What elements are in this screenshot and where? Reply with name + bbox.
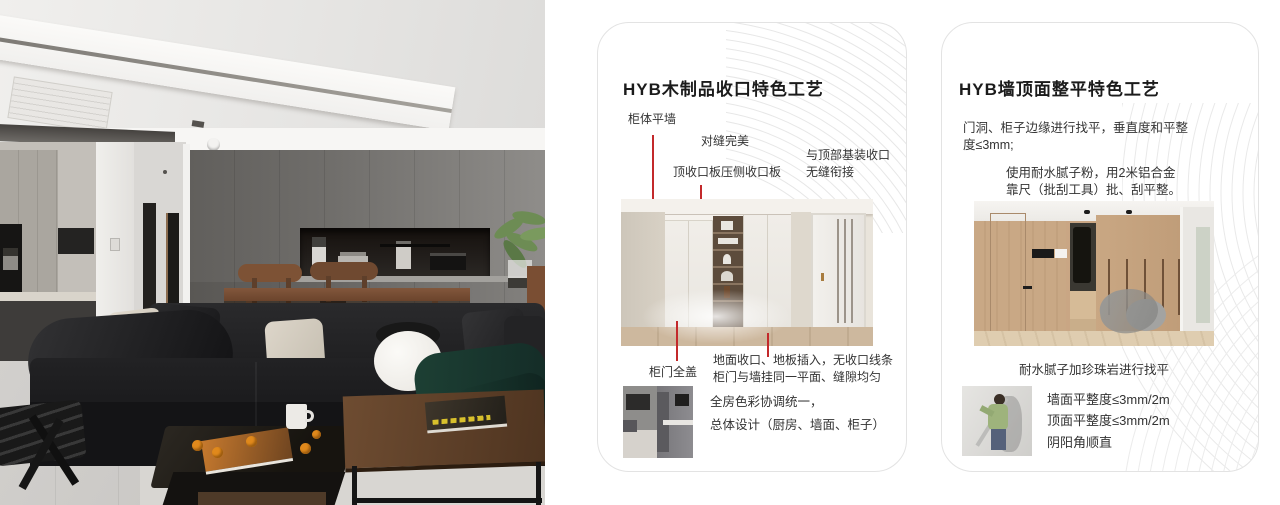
niche-radio (430, 253, 466, 270)
shelf (713, 249, 743, 251)
label-door-full-cover: 柜门全盖 (649, 364, 697, 381)
worker-thumbnail (962, 386, 1032, 456)
card-woodwork-process: HYB木制品收口特色工艺 柜体平墙 对缝完美 顶收口板压侧收口板 与顶部基装收口… (597, 22, 907, 472)
render-wall-gap (791, 212, 811, 329)
door-slat (837, 219, 839, 323)
card-wall-leveling-process: HYB墙顶面整平特色工艺 门洞、柜子边缘进行找平，垂直度和平整 度≤3mm; 使… (941, 22, 1259, 472)
door-knob (821, 273, 824, 281)
wardrobe-render (621, 199, 873, 346)
thumb-tv (626, 394, 650, 410)
worker-jeans (991, 429, 1006, 450)
spec-ceiling-flatness: 顶面平整度≤3mm/2m (1047, 410, 1170, 432)
room-downlight (1126, 210, 1132, 214)
hallway-downlight (163, 170, 167, 174)
label-color-harmony-2: 总体设计（厨房、墙面、柜子） (710, 417, 885, 434)
orange-fruit (212, 447, 223, 458)
kitchen-counter (0, 292, 96, 301)
shelf-item (718, 238, 738, 244)
thumb-sofa (623, 420, 637, 432)
label-cabinet-flush-wall: 柜体平墙 (628, 111, 676, 128)
orange-fruit (246, 436, 257, 447)
living-room-photo (0, 0, 545, 505)
label-floor-closing-2: 柜门与墙挂同一平面、缝隙均匀 (713, 369, 881, 386)
kitchen-thumbnail (623, 386, 693, 458)
orange-fruit (300, 443, 311, 454)
annotation-line (676, 321, 678, 361)
label-color-harmony-1: 全房色彩协调统一， (710, 394, 823, 411)
spec-corners-straight: 阴阳角顺直 (1047, 432, 1112, 454)
wood-room-photo (974, 201, 1214, 346)
page: HYB木制品收口特色工艺 柜体平墙 对缝完美 顶收口板压侧收口板 与顶部基装收口… (0, 0, 1280, 505)
spec-wall-flatness: 墙面平整度≤3mm/2m (1047, 389, 1170, 411)
door-slat (844, 219, 846, 323)
orange-fruit (192, 440, 203, 451)
orange-fruit (312, 430, 321, 439)
para-door-cabinet-leveling-2: 度≤3mm; (963, 137, 1014, 154)
card2-title: HYB墙顶面整平特色工艺 (959, 75, 1160, 100)
niche-rail (380, 244, 450, 247)
room-glass-door (1196, 227, 1210, 323)
room-wood-floor (974, 331, 1214, 346)
shelf (713, 283, 743, 285)
door-slat (851, 219, 853, 323)
para-door-cabinet-leveling-1: 门洞、柜子边缘进行找平，垂直度和平整 (963, 120, 1188, 137)
label-floor-closing-1: 地面收口、地板插入，无收口线条 (713, 352, 893, 369)
wood-table-frame (352, 498, 542, 503)
shelf (713, 232, 743, 234)
caption-pearlite-putty: 耐水腻子加珍珠岩进行找平 (974, 359, 1214, 378)
thumb-appliance (675, 394, 689, 406)
entry-door (811, 213, 866, 329)
sofa-seam (255, 362, 257, 432)
shelf (713, 266, 743, 268)
para-putty-ruler-2: 靠尺（批刮工具）批、刮平整。 (1006, 182, 1181, 199)
label-top-joint-1: 与顶部基装收口 (806, 147, 890, 164)
shelf-item (723, 254, 731, 264)
shelf-item (721, 221, 733, 230)
label-top-closing-board: 顶收口板压侧收口板 (673, 164, 781, 181)
thumb-counter (663, 420, 693, 425)
kitchen-built-in-oven (58, 228, 94, 254)
para-putty-ruler-1: 使用耐水腻子粉，用2米铝合金 (1006, 165, 1175, 182)
magazine-title-strip (432, 415, 490, 425)
white-mug (286, 404, 307, 429)
room-control-panel (1032, 249, 1054, 258)
card1-title: HYB木制品收口特色工艺 (623, 75, 824, 100)
stone-table-base (198, 492, 326, 505)
room-switch-plate (1055, 249, 1067, 258)
label-top-joint-2: 无缝衔接 (806, 164, 854, 181)
room-door-handle (1023, 286, 1032, 289)
dining-chair-back (310, 262, 378, 280)
room-hanging-clothes (1073, 227, 1091, 283)
dining-chair-back (238, 264, 302, 282)
thumb-floor (623, 430, 657, 458)
room-downlight (1084, 210, 1090, 214)
dining-table (224, 288, 470, 301)
kitchen-coffee-machine (3, 248, 18, 270)
room-drawers (1070, 291, 1096, 333)
label-perfect-seam: 对缝完美 (701, 133, 749, 150)
shelf-item (721, 271, 733, 281)
light-switch (110, 238, 120, 251)
room-wood-door (990, 213, 1026, 333)
